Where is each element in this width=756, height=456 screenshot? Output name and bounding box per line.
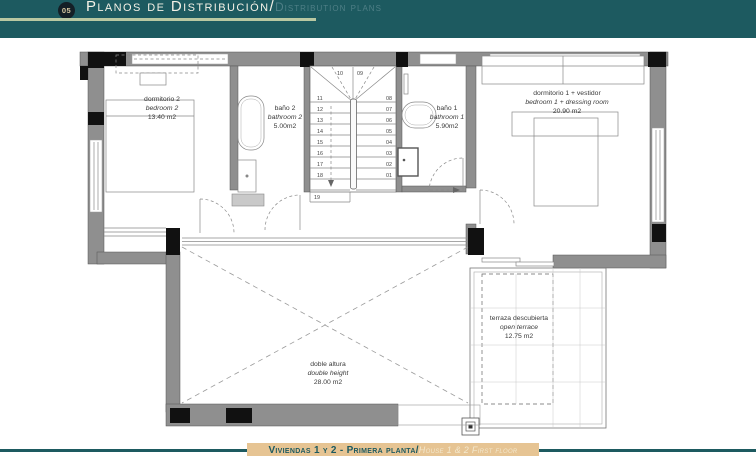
stair-num: 06	[386, 118, 392, 124]
bed-bedroom1	[534, 118, 598, 206]
stair-num: 14	[317, 129, 323, 135]
room-label-terrace-area: 12.75 m2	[505, 333, 534, 340]
stair-num: 13	[317, 118, 323, 124]
brochure-page: 05 Planos de Distribución/Distribution p…	[0, 0, 756, 456]
room-label-bathroom2-es: baño 2	[275, 105, 296, 112]
stair-num: 09	[357, 71, 363, 77]
stair-num: 19	[314, 195, 320, 201]
room-label-bedroom2-area: 13.40 m2	[148, 114, 177, 121]
stair-num: 10	[337, 71, 343, 77]
floor-plan: 10 09 11 12 13 14 15 16 17 18 19 08 07 0…	[0, 0, 756, 456]
stair-num: 03	[386, 151, 392, 157]
room-label-bathroom2-en: bathroom 2	[268, 114, 303, 121]
footer-caption-es: Viviendas 1 y 2 - Primera planta/	[268, 445, 418, 456]
stair-num: 02	[386, 162, 392, 168]
room-label-bedroom1-es: dormitorio 1 + vestidor	[533, 90, 601, 97]
stair-num: 15	[317, 140, 323, 146]
staircase: 10 09 11 12 13 14 15 16 17 18 19 08 07 0…	[310, 66, 396, 202]
room-label-bathroom1-es: baño 1	[437, 105, 458, 112]
room-label-doubleheight-en: double height	[308, 370, 350, 377]
room-label-bedroom2-es: dormitorio 2	[144, 96, 180, 103]
room-label-bedroom1-area: 20.90 m2	[553, 108, 582, 115]
toilet-bath1	[398, 148, 418, 176]
room-label-terrace-es: terraza descubierta	[490, 315, 548, 322]
stair-num: 16	[317, 151, 323, 157]
room-label-terrace-en: open terrace	[500, 324, 538, 331]
room-label-doubleheight-es: doble altura	[310, 361, 346, 368]
stair-num: 11	[317, 96, 323, 102]
stair-num: 01	[386, 173, 392, 179]
footer-caption-en: House 1 & 2 First floor	[419, 445, 518, 455]
stair-num: 08	[386, 96, 392, 102]
stair-num: 05	[386, 129, 392, 135]
balustrade	[182, 238, 468, 245]
terrace	[398, 268, 606, 435]
stair-num: 18	[317, 173, 323, 179]
footer-caption: Viviendas 1 y 2 - Primera planta/House 1…	[247, 443, 539, 456]
stair-num: 07	[386, 107, 392, 113]
stair-num: 12	[317, 107, 323, 113]
stair-num: 17	[317, 162, 323, 168]
room-label-doubleheight-area: 28.00 m2	[314, 379, 343, 386]
room-label-bathroom1-en: bathroom 1	[430, 114, 465, 121]
stair-num: 04	[386, 140, 392, 146]
room-label-bathroom1-area: 5.90m2	[436, 123, 459, 130]
room-label-bedroom1-en: bedroom 1 + dressing room	[525, 99, 609, 106]
room-label-bedroom2-en: bedroom 2	[146, 105, 179, 112]
room-label-bathroom2-area: 5.00m2	[274, 123, 297, 130]
